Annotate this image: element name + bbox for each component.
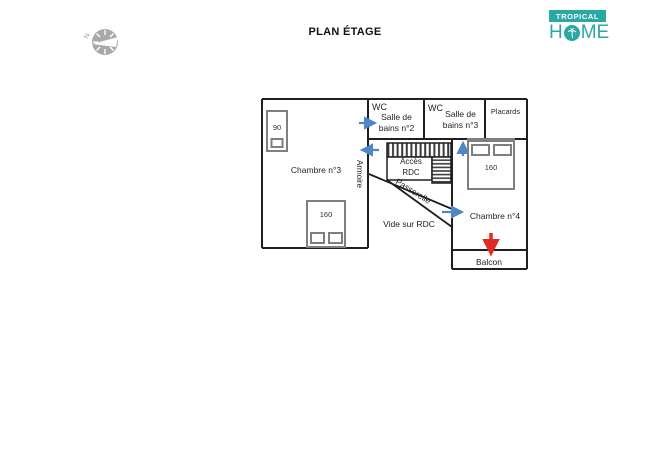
pillow: [328, 232, 343, 244]
room-label-chambre4: Chambre n°4: [454, 211, 536, 222]
bed-double-chambre3: 160: [306, 200, 346, 248]
room-label-chambre3: Chambre n°3: [266, 165, 366, 176]
logo-brand-text: TROPICAL: [549, 10, 606, 22]
page-title: PLAN ÉTAGE: [270, 26, 420, 38]
label-vide-sur-rdc: Vide sur RDC: [369, 219, 449, 230]
bed-size-label: 160: [320, 210, 333, 219]
bed-size-label: 90: [273, 123, 281, 132]
compass-icon: N: [83, 29, 118, 55]
logo-home-text: H ME: [549, 23, 611, 42]
pillow: [271, 138, 284, 148]
bed-single-90: 90: [266, 110, 288, 152]
tropical-home-logo: TROPICAL H ME: [549, 10, 611, 42]
room-label-armoire: Armoire: [355, 160, 364, 210]
room-label-placards: Placards: [485, 106, 526, 117]
room-label-bains3: Salle de bains n°3: [433, 109, 488, 131]
room-label-bains2: Salle de bains n°2: [369, 112, 424, 134]
pillow: [493, 144, 512, 156]
logo-letters-me: ME: [581, 23, 610, 42]
stairs-hatch-top: [387, 143, 451, 157]
stairs-hatch-side: [432, 157, 451, 183]
logo-letter-h: H: [549, 23, 563, 42]
palm-tree-icon: [564, 25, 580, 41]
bed-double-chambre4: 160: [467, 138, 515, 190]
room-label-balcon: Balcon: [452, 257, 526, 268]
compass-north-label: N: [83, 32, 92, 40]
floor-plan-page: N PLAN ÉTAGE TROPICAL H ME: [0, 0, 650, 450]
pillow: [471, 144, 490, 156]
pillow: [310, 232, 325, 244]
bed-size-label: 160: [485, 163, 498, 172]
